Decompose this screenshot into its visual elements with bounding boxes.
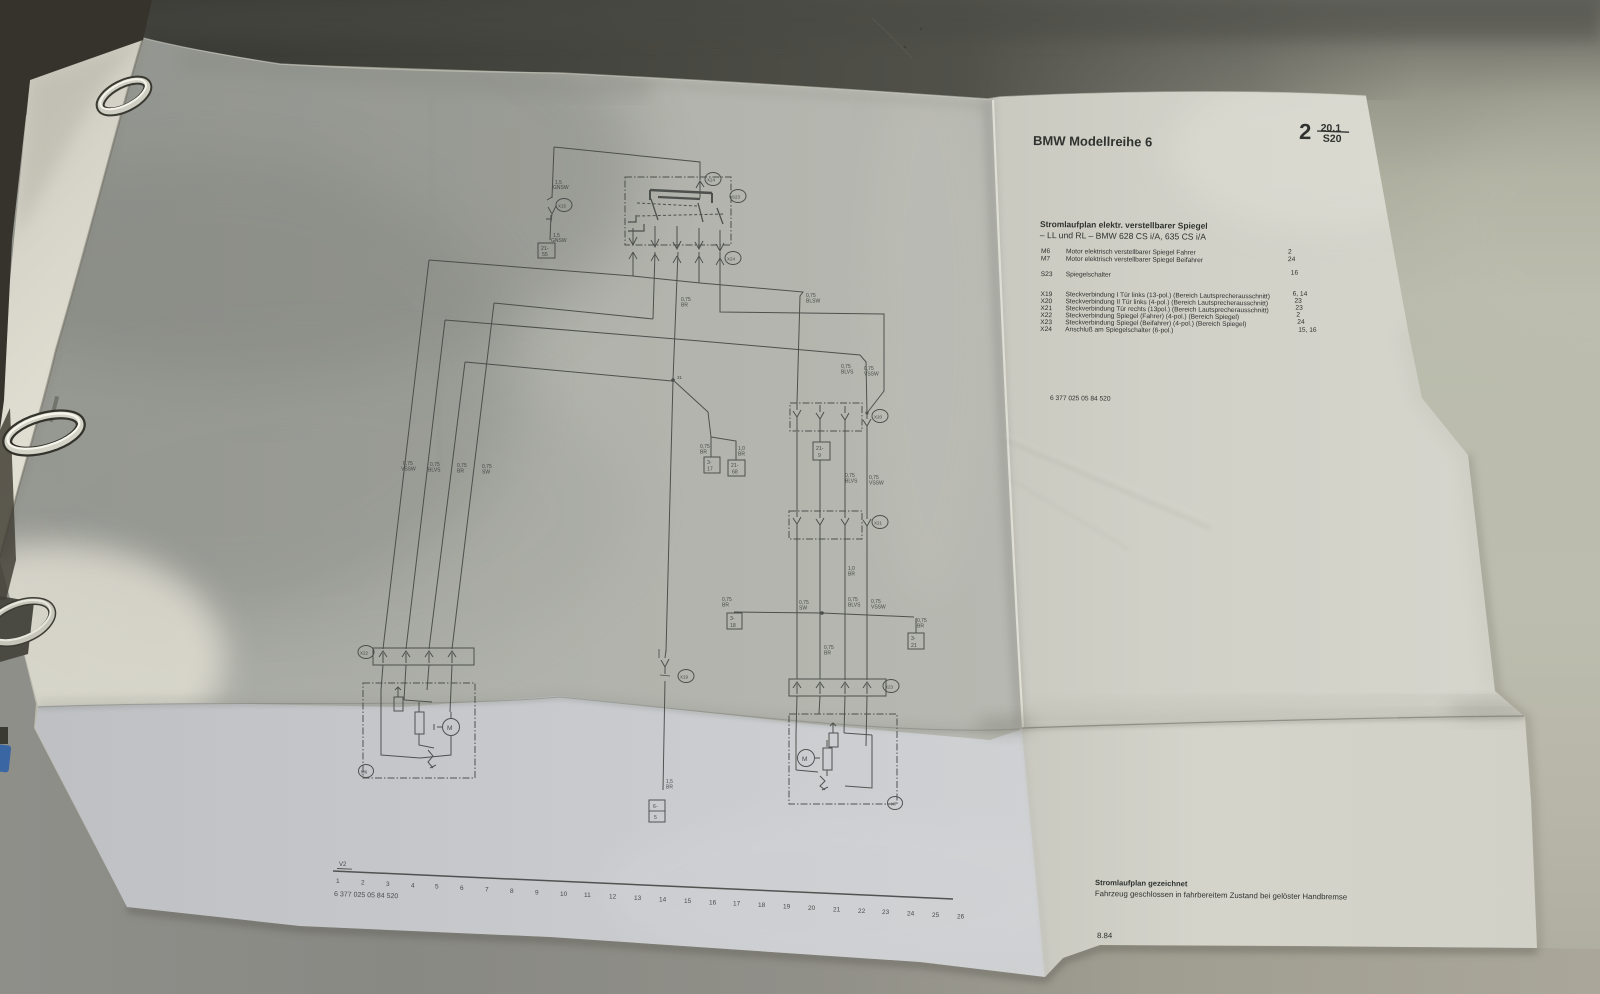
- svg-text:BR: BR: [722, 603, 729, 609]
- svg-text:X20: X20: [874, 415, 883, 420]
- svg-text:Spiegelschalter: Spiegelschalter: [1066, 271, 1112, 278]
- svg-text:X24: X24: [1040, 326, 1052, 333]
- svg-text:55: 55: [542, 252, 548, 258]
- svg-text:M: M: [802, 756, 807, 763]
- svg-text:21-: 21-: [731, 463, 739, 469]
- svg-text:X21: X21: [874, 521, 883, 526]
- svg-text:BMW Modellreihe 6: BMW Modellreihe 6: [1033, 133, 1152, 149]
- svg-text:BR: BR: [666, 785, 673, 791]
- svg-text:8: 8: [510, 888, 514, 895]
- svg-text:17: 17: [707, 467, 713, 473]
- svg-text:15: 15: [684, 898, 692, 905]
- svg-text:BLVS: BLVS: [428, 468, 441, 474]
- svg-text:Stromlaufplan elektr. verstell: Stromlaufplan elektr. verstellbarer Spie…: [1040, 219, 1208, 231]
- svg-text:16: 16: [709, 899, 717, 906]
- svg-text:2: 2: [1288, 249, 1292, 256]
- svg-text:2: 2: [1299, 119, 1312, 144]
- svg-text:BR: BR: [457, 469, 464, 475]
- svg-text:9: 9: [818, 453, 821, 459]
- svg-text:68: 68: [732, 470, 738, 476]
- svg-text:X24: X24: [707, 178, 716, 183]
- svg-text:3: 3: [386, 881, 390, 888]
- svg-text:X22: X22: [360, 651, 369, 656]
- svg-text:– LL und RL – BMW 628 CS i/A,: – LL und RL – BMW 628 CS i/A, 635 CS i/A: [1040, 230, 1206, 242]
- svg-text:5: 5: [654, 815, 657, 821]
- svg-text:23: 23: [1294, 298, 1302, 305]
- svg-text:BR: BR: [917, 624, 924, 630]
- svg-text:Anschluß am Spiegelschalter (6: Anschluß am Spiegelschalter (6-pol.): [1065, 326, 1173, 334]
- svg-text:24: 24: [1288, 256, 1296, 263]
- svg-text:M6: M6: [361, 770, 368, 775]
- svg-text:BR: BR: [848, 572, 855, 578]
- svg-text:BR: BR: [681, 303, 688, 309]
- svg-text:24: 24: [1297, 319, 1305, 326]
- svg-text:2: 2: [1296, 312, 1300, 319]
- svg-text:M7: M7: [1041, 255, 1051, 262]
- svg-text:SW: SW: [799, 606, 807, 612]
- svg-text:3-: 3-: [730, 616, 735, 622]
- svg-text:BR: BR: [738, 452, 745, 458]
- svg-text:21: 21: [911, 643, 917, 649]
- svg-text:17: 17: [733, 901, 741, 908]
- svg-text:18: 18: [758, 902, 766, 909]
- svg-text:31: 31: [677, 375, 683, 380]
- svg-text:23: 23: [1295, 305, 1303, 312]
- svg-text:S23: S23: [732, 195, 741, 200]
- svg-text:X15: X15: [558, 204, 567, 209]
- svg-text:VSSW: VSSW: [401, 467, 416, 473]
- svg-text:Motor elektrisch verstellbarer: Motor elektrisch verstellbarer Spiegel B…: [1066, 256, 1204, 264]
- svg-text:Stromlaufplan gezeichnet: Stromlaufplan gezeichnet: [1095, 878, 1188, 888]
- svg-text:BLSW: BLSW: [806, 299, 820, 305]
- svg-text:6: 6: [460, 885, 464, 892]
- svg-text:BLVS: BLVS: [848, 603, 861, 609]
- svg-text:18: 18: [730, 623, 736, 629]
- svg-text:SW: SW: [482, 470, 490, 476]
- svg-text:VSSW: VSSW: [869, 481, 884, 487]
- svg-text:GNSW: GNSW: [553, 185, 569, 191]
- svg-text:X24: X24: [727, 257, 736, 262]
- svg-text:VSSW: VSSW: [864, 372, 879, 378]
- svg-text:25: 25: [932, 912, 940, 919]
- svg-text:4: 4: [411, 882, 415, 889]
- svg-text:9: 9: [535, 889, 539, 896]
- svg-text:10: 10: [560, 891, 568, 898]
- svg-text:2: 2: [361, 879, 365, 886]
- svg-text:6 377 025 05 84 520: 6 377 025 05 84 520: [1050, 395, 1111, 403]
- svg-text:14: 14: [659, 897, 667, 904]
- svg-text:7: 7: [485, 887, 489, 894]
- svg-text:S20: S20: [1323, 133, 1342, 145]
- svg-text:20: 20: [808, 905, 816, 912]
- svg-text:S23: S23: [1041, 271, 1053, 278]
- svg-text:BR: BR: [824, 651, 831, 657]
- svg-text:22: 22: [858, 908, 866, 915]
- svg-text:26: 26: [957, 914, 965, 921]
- svg-text:11: 11: [584, 892, 591, 899]
- svg-text:8.84: 8.84: [1097, 931, 1113, 940]
- svg-text:BLVS: BLVS: [845, 479, 858, 485]
- svg-text:21-: 21-: [816, 446, 824, 452]
- svg-text:3-: 3-: [911, 636, 916, 642]
- svg-text:BLVS: BLVS: [841, 370, 854, 376]
- svg-text:3-: 3-: [707, 460, 712, 466]
- svg-text:19: 19: [783, 904, 791, 911]
- svg-text:6-: 6-: [653, 804, 658, 810]
- svg-text:BR: BR: [700, 450, 707, 456]
- svg-text:1: 1: [336, 878, 340, 885]
- svg-text:X7: X7: [891, 802, 897, 807]
- svg-text:5: 5: [435, 884, 439, 891]
- svg-text:X19: X19: [680, 675, 689, 680]
- svg-text:M: M: [447, 725, 452, 732]
- svg-text:X23: X23: [885, 685, 894, 690]
- svg-text:15, 16: 15, 16: [1298, 327, 1317, 334]
- svg-text:16: 16: [1291, 270, 1299, 277]
- svg-text:23: 23: [882, 909, 890, 916]
- svg-text:M6: M6: [1041, 248, 1051, 255]
- svg-text:24: 24: [907, 911, 915, 918]
- svg-text:13: 13: [634, 895, 642, 902]
- svg-text:V2: V2: [339, 862, 347, 868]
- svg-text:VSSW: VSSW: [871, 605, 886, 611]
- svg-text:12: 12: [609, 894, 617, 901]
- svg-text:21: 21: [833, 906, 841, 913]
